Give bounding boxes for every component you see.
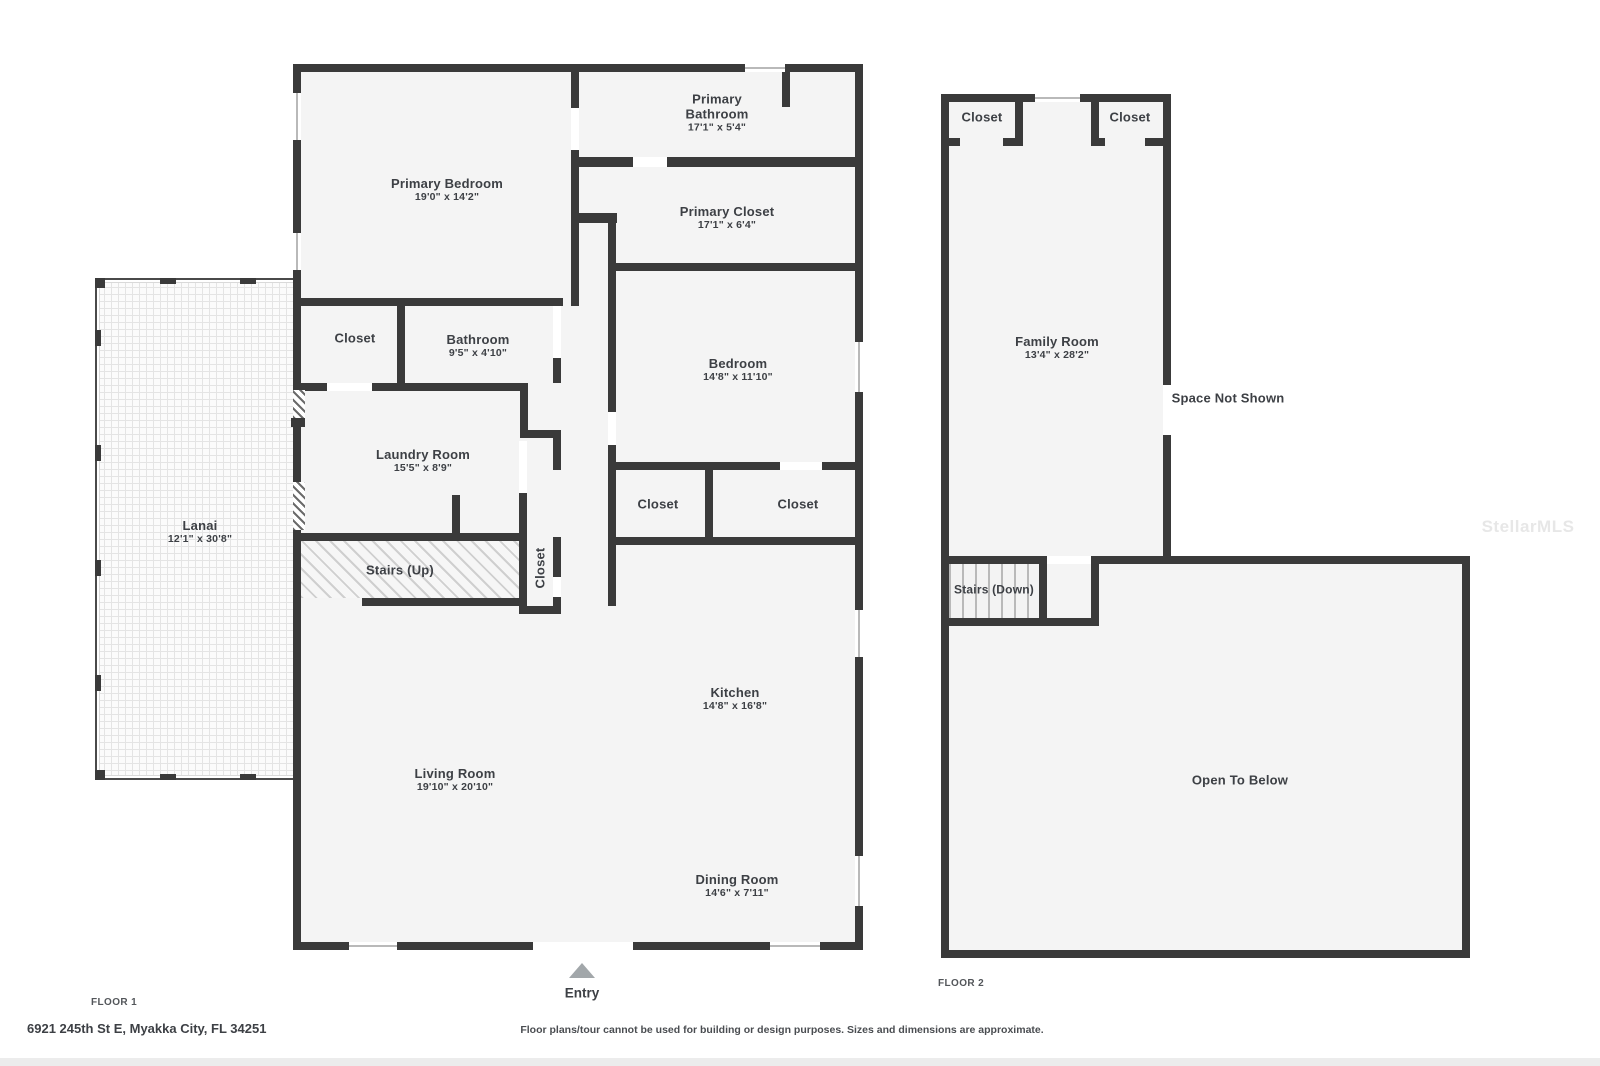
lanai-post <box>95 560 101 576</box>
window <box>349 942 397 950</box>
wall <box>1091 138 1105 146</box>
lanai-post <box>240 278 256 284</box>
floor1-label: FLOOR 1 <box>91 997 137 1008</box>
room-dims: 17'1" x 5'4" <box>665 122 769 135</box>
wall <box>941 618 1099 626</box>
room-dims: 17'1" x 6'4" <box>680 219 775 232</box>
wall <box>397 298 405 391</box>
floorplan-canvas: Primary Bedroom 19'0" x 14'2" Primary Ba… <box>0 0 1600 1066</box>
wall <box>452 495 460 535</box>
room-label-hall-closet: Closet <box>335 331 376 346</box>
wall <box>1091 556 1470 564</box>
door-hatch <box>293 482 305 530</box>
room-name: Closet <box>778 497 819 512</box>
wall <box>855 64 863 950</box>
room-name: Family Room <box>1015 334 1099 349</box>
door-opening <box>571 108 579 150</box>
entry-arrow-icon <box>569 963 595 978</box>
disclaimer-text: Floor plans/tour cannot be used for buil… <box>520 1024 1043 1036</box>
wall <box>608 462 780 470</box>
window <box>855 610 863 657</box>
room-label-bedroom-closet-left: Closet <box>638 497 679 512</box>
room-label-bedroom-closet-right: Closet <box>778 497 819 512</box>
wall <box>1145 138 1171 146</box>
open-to-below-interior <box>949 626 1462 950</box>
window <box>855 856 863 906</box>
door-opening <box>519 441 527 493</box>
wall <box>291 418 305 427</box>
lanai-post <box>95 445 101 461</box>
wall <box>553 358 561 383</box>
lanai-post <box>95 278 105 288</box>
room-name: Dining Room <box>695 872 778 887</box>
page-bottom-strip <box>0 1058 1600 1066</box>
lanai-post <box>240 774 256 780</box>
stair-landing <box>1047 564 1091 618</box>
window <box>770 942 820 950</box>
lanai-post <box>160 278 176 284</box>
lanai-post <box>95 330 101 346</box>
wall <box>941 94 949 958</box>
room-label-primary-closet: Primary Closet 17'1" x 6'4" <box>680 204 775 232</box>
wall <box>608 537 863 545</box>
lanai-post <box>95 675 101 691</box>
lanai-post <box>95 770 105 780</box>
wall <box>579 157 633 167</box>
wall <box>705 470 713 545</box>
wall <box>293 533 526 541</box>
door-opening <box>1163 385 1171 435</box>
room-label-laundry-room: Laundry Room 15'5" x 8'9" <box>376 447 470 475</box>
wall <box>1163 435 1171 556</box>
room-label-open-to-below: Open To Below <box>1192 773 1288 788</box>
wall <box>608 271 616 412</box>
wall <box>301 298 563 306</box>
wall <box>571 150 579 306</box>
room-label-lanai: Lanai 12'1" x 30'8" <box>168 518 232 546</box>
room-label-hall-closet-small: Closet <box>533 548 548 589</box>
wall <box>520 430 561 438</box>
room-dims: 14'8" x 11'10" <box>703 371 773 384</box>
wall <box>397 383 528 391</box>
property-address: 6921 245th St E, Myakka City, FL 34251 <box>27 1021 266 1036</box>
room-name: Stairs (Down) <box>954 583 1034 598</box>
room-name: Space Not Shown <box>1172 391 1285 406</box>
room-label-bathroom: Bathroom 9'5" x 4'10" <box>447 332 510 360</box>
wall <box>553 438 561 470</box>
room-dims: 19'10" x 20'10" <box>415 781 496 794</box>
room-name: Closet <box>638 497 679 512</box>
door-opening <box>553 306 561 358</box>
room-name: Closet <box>533 548 548 589</box>
room-name: Closet <box>962 110 1003 125</box>
room-name: Primary Closet <box>680 204 775 219</box>
window <box>855 342 863 392</box>
wall <box>571 72 579 108</box>
room-name: Bedroom <box>703 356 773 371</box>
floor2-label: FLOOR 2 <box>938 978 984 989</box>
stellar-mls-watermark: StellarMLS <box>1482 517 1575 537</box>
entry-door-opening <box>533 942 633 950</box>
window <box>293 233 301 270</box>
room-label-dining-room: Dining Room 14'6" x 7'11" <box>695 872 778 900</box>
room-label-stairs-up: Stairs (Up) <box>366 563 434 578</box>
label-space-not-shown: Space Not Shown <box>1172 391 1285 406</box>
wall <box>519 606 561 614</box>
room-dims: 13'4" x 28'2" <box>1015 349 1099 362</box>
wall <box>362 598 526 606</box>
window <box>745 64 785 72</box>
room-name: Primary Bathroom <box>665 92 769 122</box>
room-name: Bathroom <box>447 332 510 347</box>
wall <box>941 138 960 146</box>
wall <box>667 157 863 167</box>
room-name: Lanai <box>168 518 232 533</box>
wall <box>571 213 617 223</box>
room-name: Primary Bedroom <box>391 176 503 191</box>
room-label-closet-left: Closet <box>962 110 1003 125</box>
wall <box>1091 556 1099 626</box>
room-label-bedroom: Bedroom 14'8" x 11'10" <box>703 356 773 384</box>
wall <box>782 72 790 107</box>
room-label-kitchen: Kitchen 14'8" x 16'8" <box>703 685 767 713</box>
room-dims: 12'1" x 30'8" <box>168 533 232 546</box>
room-dims: 14'8" x 16'8" <box>703 700 767 713</box>
wall <box>941 556 1047 564</box>
door-opening <box>780 462 822 470</box>
entry-label: Entry <box>565 986 600 1001</box>
room-dims: 15'5" x 8'9" <box>376 462 470 475</box>
family-room-interior <box>949 102 1163 556</box>
room-name: Stairs (Up) <box>366 563 434 578</box>
room-name: Open To Below <box>1192 773 1288 788</box>
lanai-post <box>160 774 176 780</box>
room-label-family-room: Family Room 13'4" x 28'2" <box>1015 334 1099 362</box>
wall <box>608 263 863 271</box>
room-dims: 19'0" x 14'2" <box>391 191 503 204</box>
door-opening <box>553 577 561 597</box>
room-label-stairs-down: Stairs (Down) <box>954 583 1034 598</box>
room-dims: 14'6" x 7'11" <box>695 887 778 900</box>
room-dims: 9'5" x 4'10" <box>447 347 510 360</box>
room-label-primary-bedroom: Primary Bedroom 19'0" x 14'2" <box>391 176 503 204</box>
window <box>293 93 301 140</box>
room-name: Kitchen <box>703 685 767 700</box>
room-label-closet-right: Closet <box>1110 110 1151 125</box>
wall <box>553 537 561 577</box>
room-label-living-room: Living Room 19'10" x 20'10" <box>415 766 496 794</box>
open-to-below-interior <box>1099 564 1462 626</box>
room-name: Laundry Room <box>376 447 470 462</box>
room-label-primary-bathroom: Primary Bathroom 17'1" x 5'4" <box>665 92 769 135</box>
wall <box>1462 556 1470 958</box>
door-opening <box>608 412 616 445</box>
wall <box>1003 138 1023 146</box>
wall <box>822 462 863 470</box>
door-opening <box>327 383 372 391</box>
door-opening <box>633 157 667 167</box>
door-hatch <box>293 390 305 418</box>
room-name: Closet <box>335 331 376 346</box>
room-name: Living Room <box>415 766 496 781</box>
wall <box>941 950 1470 958</box>
window <box>1035 94 1080 102</box>
wall <box>1039 556 1047 626</box>
room-name: Closet <box>1110 110 1151 125</box>
